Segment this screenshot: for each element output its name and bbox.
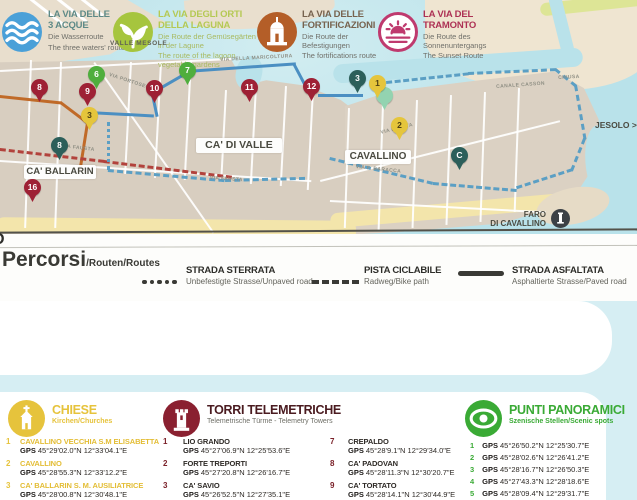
- gps-label: GPS: [482, 477, 498, 486]
- list-item: 2GPS45°28'02.6"N 12°26'41.2"E: [470, 453, 605, 465]
- gps-value: 45°28'11.3"N 12°30'20.7"E: [366, 468, 455, 477]
- label-ca-ballarin: CA' BALLARIN: [24, 165, 96, 179]
- item-name: CREPALDO: [348, 437, 460, 446]
- item-number: 2: [163, 459, 167, 468]
- route-sub-de: Die Route der Gemüsegärten in der Lagune: [158, 33, 260, 50]
- gps-label: GPS: [20, 446, 36, 455]
- route-title-line1: LA VIA DEGLI ORTI: [158, 10, 260, 21]
- routes-panel: [0, 301, 612, 375]
- item-name: LIO GRANDO: [183, 437, 323, 446]
- dashed-line-icon: [312, 271, 362, 289]
- tower-icon: [163, 400, 200, 437]
- item-number: 7: [330, 437, 334, 446]
- legend-item: STRADA ASFALTATA Asphaltierte Strasse/Pa…: [512, 265, 627, 286]
- gps-value: 45°28'09.4"N 12°29'31.7"E: [500, 489, 589, 498]
- gps-label: GPS: [183, 446, 199, 455]
- list-item: 3 CA' BALLARIN S. M. AUSILIATRICE GPS45°…: [6, 481, 158, 500]
- item-name: CA' BALLARIN S. M. AUSILIATRICE: [20, 481, 158, 490]
- section-title: CHIESE: [52, 404, 112, 417]
- item-number: 8: [330, 459, 334, 468]
- gps-label: GPS: [482, 465, 498, 474]
- label-cavallino: CAVALLINO: [345, 150, 411, 164]
- torri-list-right: 7 CREPALDO GPS45°28'9.1"N 12°29'34.0"E 8…: [330, 437, 460, 500]
- item-number: 4: [470, 477, 474, 486]
- lighthouse-icon: [551, 209, 570, 228]
- route-sub-en: The fortifications route: [302, 52, 384, 61]
- list-item: 8 CA' PADOVAN GPS45°28'11.3"N 12°30'20.7…: [330, 459, 460, 481]
- gps-value: 45°28'02.6"N 12°26'41.2"E: [500, 453, 589, 462]
- list-item: 1GPS45°26'50.2"N 12°25'30.7"E: [470, 441, 605, 453]
- list-item: 3 CA' SAVIO GPS45°26'52.5"N 12°27'35.1"E: [163, 481, 323, 500]
- item-number: 3: [470, 465, 474, 474]
- map-pin: 3: [349, 70, 366, 87]
- list-item: 4GPS45°27'43.3"N 12°28'18.6"E: [470, 477, 605, 489]
- list-item: 5GPS45°28'09.4"N 12°29'31.7"E: [470, 489, 605, 500]
- map-pin: 7: [179, 62, 196, 79]
- item-name: CA' TORTATO: [348, 481, 460, 490]
- route-sub-de: Die Route der Befestigungen: [302, 33, 384, 50]
- gps-label: GPS: [482, 441, 498, 450]
- gps-value: 45°28'9.1"N 12°29'34.0"E: [366, 446, 451, 455]
- chiese-list: 1 CAVALLINO VECCHIA S.M ELISABETTA GPS45…: [6, 437, 158, 500]
- list-item: 9 CA' TORTATO GPS45°28'14.1"N 12°30'44.9…: [330, 481, 460, 500]
- gps-value: 45°28'14.1"N 12°30'44.9"E: [366, 490, 455, 499]
- gps-value: 45°28'16.7"N 12°26'50.3"E: [500, 465, 589, 474]
- map-pin: 8: [31, 79, 48, 96]
- section-title: TORRI TELEMETRICHE: [207, 404, 341, 417]
- map-pin: 11: [241, 79, 258, 96]
- item-name: CA' PADOVAN: [348, 459, 460, 468]
- section-torri-header: TORRI TELEMETRICHE Telemetrische Türme -…: [207, 404, 341, 425]
- gps-label: GPS: [348, 446, 364, 455]
- legend-item-sub: Unbefestigte Strasse/Unpaved road: [186, 277, 313, 286]
- section-punti-header: PUNTI PANORAMICI Szenische Stellen/Sceni…: [509, 404, 625, 425]
- gps-value: 45°26'52.5"N 12°27'35.1"E: [201, 490, 290, 499]
- section-title: PUNTI PANORAMICI: [509, 404, 625, 417]
- legend-item-name: STRADA ASFALTATA: [512, 265, 627, 276]
- legend-band: D Percorsi/Routen/Routes STRADA STERRATA…: [0, 234, 637, 301]
- item-number: 9: [330, 481, 334, 490]
- gps-value: 45°28'55.3"N 12°33'12.2"E: [38, 468, 127, 477]
- punti-list: 1GPS45°26'50.2"N 12°25'30.7"E 2GPS45°28'…: [470, 441, 605, 500]
- section-subtitle: Kirchen/Churches: [52, 418, 112, 425]
- label-ca-di-valle: CA' DI VALLE: [196, 138, 282, 153]
- legend-title: Percorsi/Routen/Routes: [2, 248, 160, 272]
- item-number: 2: [470, 453, 474, 462]
- gps-label: GPS: [482, 453, 498, 462]
- gps-label: GPS: [348, 468, 364, 477]
- map-pin: 9: [79, 83, 96, 100]
- route-dotted-segment: [107, 122, 110, 170]
- map-pin: 2: [391, 117, 408, 134]
- item-name: CAVALLINO VECCHIA S.M ELISABETTA: [20, 437, 158, 446]
- sunset-icon: [378, 12, 418, 52]
- route-title-line1: LA VIA DELLE: [302, 10, 384, 21]
- section-chiese-header: CHIESE Kirchen/Churches: [52, 404, 112, 425]
- waves-icon: [2, 12, 42, 52]
- route-card: LA VIA DELLE FORTIFICAZIONI Die Route de…: [302, 10, 384, 61]
- torri-list-left: 1 LIO GRANDO GPS45°27'06.9"N 12°25'53.6"…: [163, 437, 323, 500]
- gps-value: 45°26'50.2"N 12°25'30.7"E: [500, 441, 589, 450]
- item-number: 1: [470, 441, 474, 450]
- map-pin: 10: [146, 80, 163, 97]
- list-item: 3GPS45°28'16.7"N 12°26'50.3"E: [470, 465, 605, 477]
- legend-item-sub: Radweg/Bike path: [364, 277, 441, 286]
- list-item: 7 CREPALDO GPS45°28'9.1"N 12°29'34.0"E: [330, 437, 460, 459]
- route-title-line2: DELLA LAGUNA: [158, 21, 260, 32]
- gps-value: 45°27'20.8"N 12°26'16.7"E: [201, 468, 290, 477]
- map-pin: 3: [81, 107, 98, 124]
- legend-item: PISTA CICLABILE Radweg/Bike path: [364, 265, 441, 286]
- legend-item-sub: Asphaltierte Strasse/Paved road: [512, 277, 627, 286]
- map-pin: 16: [24, 179, 41, 196]
- eye-icon: [465, 400, 502, 437]
- item-number: 5: [470, 489, 474, 498]
- map-pin: 6: [88, 66, 105, 83]
- label-faro-line1: FARO: [488, 210, 546, 219]
- gps-value: 45°27'06.9"N 12°25'53.6"E: [201, 446, 290, 455]
- map-pin: C: [451, 147, 468, 164]
- church-icon: [8, 400, 45, 437]
- gps-label: GPS: [183, 468, 199, 477]
- map-pin: 12: [303, 78, 320, 95]
- list-item: 1 LIO GRANDO GPS45°27'06.9"N 12°25'53.6"…: [163, 437, 323, 459]
- list-item: 2 CAVALLINO GPS45°28'55.3"N 12°33'12.2"E: [6, 459, 158, 481]
- brochure-page: VIA FAUSTA VIA FAUSTA VIA FAUSTA VIA DEL…: [0, 0, 637, 500]
- legend-title-main: Percorsi: [2, 248, 86, 271]
- gps-value: 45°29'02.0"N 12°33'04.1"E: [38, 446, 127, 455]
- item-number: 2: [6, 459, 10, 468]
- map-pin: 1: [369, 75, 386, 92]
- legend-item-name: STRADA STERRATA: [186, 265, 313, 276]
- gps-label: GPS: [20, 468, 36, 477]
- label-valle-mesole: VALLE MESOLE: [110, 40, 167, 47]
- gps-value: 45°27'43.3"N 12°28'18.6"E: [500, 477, 589, 486]
- legend-title-rest: /Routen/Routes: [86, 258, 160, 269]
- route-title-line2: TRAMONTO: [423, 21, 513, 32]
- gps-label: GPS: [183, 490, 199, 499]
- legend-item: STRADA STERRATA Unbefestigte Strasse/Unp…: [186, 265, 313, 286]
- gps-label: GPS: [20, 490, 36, 499]
- label-faro-line2: DI CAVALLINO: [488, 219, 546, 228]
- street-label: CHIUSA: [558, 74, 580, 81]
- list-item: 1 CAVALLINO VECCHIA S.M ELISABETTA GPS45…: [6, 437, 158, 459]
- dotted-line-icon: [142, 271, 180, 289]
- item-number: 3: [6, 481, 10, 490]
- item-number: 1: [6, 437, 10, 446]
- section-subtitle: Szenische Stellen/Scenic spots: [509, 418, 625, 425]
- route-sub-en: The Sunset Route: [423, 52, 513, 61]
- item-name: FORTE TREPORTI: [183, 459, 323, 468]
- gps-value: 45°28'00.8"N 12°30'48.1"E: [38, 490, 127, 499]
- item-name: CA' SAVIO: [183, 481, 323, 490]
- route-title-line2: FORTIFICAZIONI: [302, 21, 384, 32]
- list-item: 2 FORTE TREPORTI GPS45°27'20.8"N 12°26'1…: [163, 459, 323, 481]
- legend-item-name: PISTA CICLABILE: [364, 265, 441, 276]
- gps-label: GPS: [482, 489, 498, 498]
- label-jesolo: JESOLO >: [595, 120, 637, 130]
- map-pin: 8: [51, 137, 68, 154]
- route-title-line1: LA VIA DEL: [423, 10, 513, 21]
- item-number: 1: [163, 437, 167, 446]
- section-subtitle: Telemetrische Türme - Telemetry Towers: [207, 418, 341, 425]
- item-name: CAVALLINO: [20, 459, 158, 468]
- gps-label: GPS: [348, 490, 364, 499]
- solid-line-icon: [458, 271, 504, 276]
- fort-icon: [257, 12, 297, 52]
- route-card: LA VIA DEL TRAMONTO Die Route des Sonnen…: [423, 10, 513, 61]
- item-number: 3: [163, 481, 167, 490]
- route-sub-de: Die Route des Sonnenuntergangs: [423, 33, 513, 50]
